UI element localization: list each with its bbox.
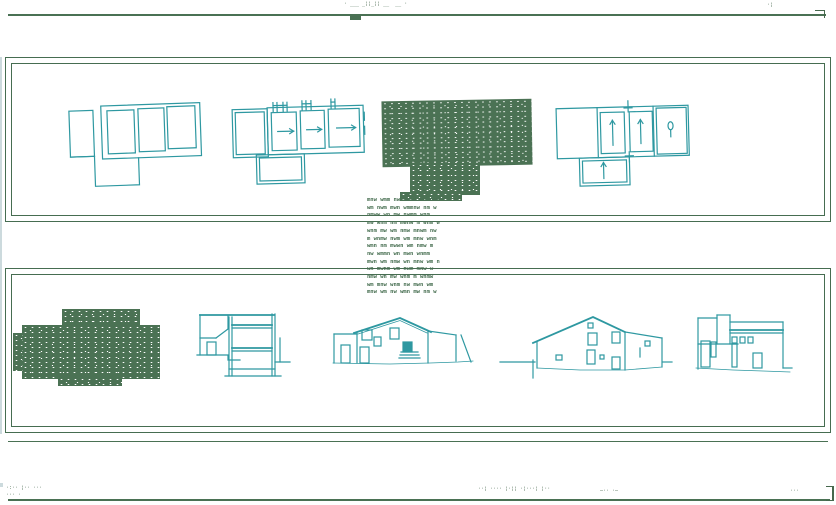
- note-line: mw wnm nm mwnw m wnm w: [367, 220, 463, 228]
- sheet-bottom-left-marks-1: ·:·· ¦·· ···: [6, 486, 42, 491]
- floor-plan-b: [228, 98, 370, 188]
- floor-plan-annotated-main: [381, 99, 532, 168]
- note-line: mwn wm nmw wn mnw wm n: [367, 259, 463, 267]
- sheet-left-edge-strip: [0, 57, 2, 434]
- note-line: nmww wn mw nwmm wnm: [367, 212, 463, 220]
- building-section: [195, 312, 293, 380]
- elevation-rear: [500, 314, 675, 380]
- sheet-bottom-mid-marks: —·· ·—: [600, 489, 618, 494]
- sheet-bottom-center-marks: ··¦ ···· ¦·¦¦ ·¦···¦ ¦··: [478, 487, 613, 492]
- floor-plan-c: [553, 100, 695, 188]
- elevation-front: [330, 314, 476, 368]
- elevation-annotated-bottom: [58, 377, 122, 386]
- note-line: wmn nm mwwn wm nmw m: [367, 243, 463, 251]
- sheet-top-corner-mark: [815, 10, 825, 18]
- floor-plan-a: [60, 95, 205, 190]
- note-line: mnw wmm nw mwnm wm nmw: [367, 197, 463, 205]
- elevation-annotated-main: [22, 325, 160, 379]
- sheet-bottom-corner-mark: [826, 486, 834, 501]
- elevation-annotated-left: [13, 333, 23, 371]
- sheet-title-marks: · ___ _¦¦_¦¦ __ __ ·: [344, 2, 436, 7]
- floor-plan-annotated-wing: [410, 163, 480, 195]
- sheet-top-right-marks: ·¦: [767, 3, 773, 8]
- sheet-top-notch: [350, 16, 361, 20]
- sheet-top-border: [8, 14, 826, 16]
- note-line: wnm mw wm nmw mnwm nw: [367, 228, 463, 236]
- sheet-bottom-border: [8, 499, 830, 501]
- sheet-corner-chip: [0, 483, 3, 487]
- elevation-side: [693, 313, 793, 375]
- note-line: m wnmw nwm wm mnw wnm: [367, 236, 463, 244]
- sheet-lower-rule: [8, 441, 828, 442]
- sheet-bottom-right-marks: ···: [790, 489, 799, 494]
- note-line: wm nwm mwn wmmnw nm w: [367, 205, 463, 213]
- sheet-bottom-left-marks-2: ··· ·: [6, 493, 21, 498]
- note-line: nw wmmn wn mwn wnmm: [367, 251, 463, 259]
- drawing-sheet: · ___ _¦¦_¦¦ __ __ · ·¦: [0, 0, 836, 505]
